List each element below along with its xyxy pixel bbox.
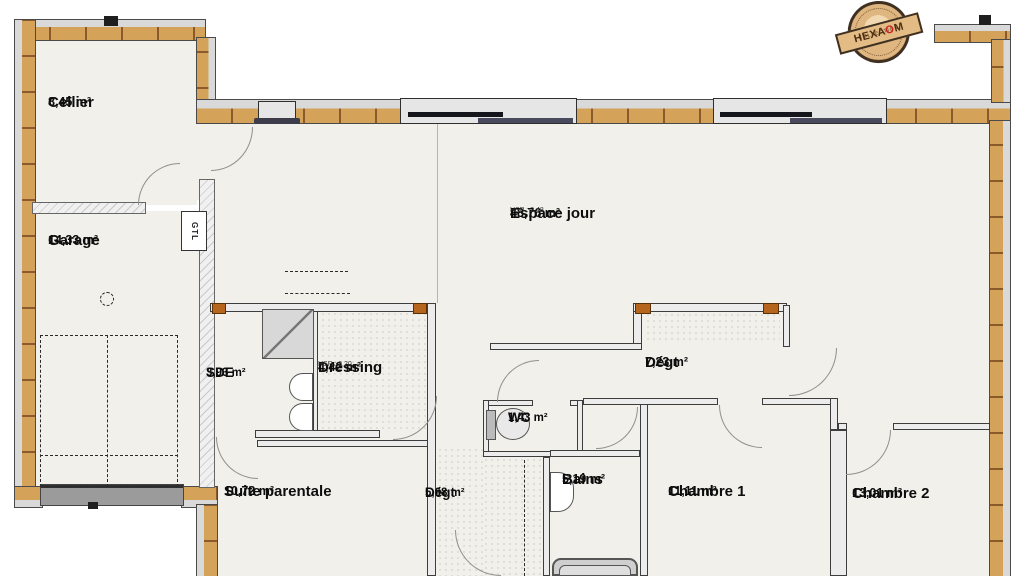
wall-chambre1-north-right xyxy=(762,398,838,405)
vent-mark-garage xyxy=(88,502,98,509)
lintel-degt-right xyxy=(763,303,779,314)
parking-space-crossline xyxy=(40,455,178,456)
wall-bains-chambre1 xyxy=(640,398,648,576)
shower xyxy=(262,309,314,359)
wall-sde-dressing-north xyxy=(210,303,435,312)
wall-wc-east xyxy=(577,400,583,457)
garage-wall-south-right xyxy=(182,487,217,507)
wall-kitchen-horizontal xyxy=(490,343,642,350)
bay-window-2-pane-dark xyxy=(720,112,812,117)
wall-chambre1-north-left xyxy=(583,398,718,405)
parking-space-centerline xyxy=(107,335,108,487)
gtl-box: GTL xyxy=(181,211,207,251)
wall-bains-west xyxy=(543,457,550,576)
wall-bains-north xyxy=(550,450,640,457)
closet-speckle-zone xyxy=(645,312,780,342)
vent-mark-left xyxy=(104,16,118,26)
wall-cellier-garage xyxy=(33,203,145,213)
window-front-small-sill xyxy=(254,118,300,124)
wall-degt-east xyxy=(783,305,790,347)
floor-plan: GTL Cellier 8,45 m² Garage 14,33 m² Espa… xyxy=(0,0,1024,576)
garage-drain-symbol xyxy=(100,292,114,306)
bay-window-1-pane-dark xyxy=(408,112,503,117)
wall-chambre1-chambre2 xyxy=(830,430,847,576)
wall-chambre2-west-stub xyxy=(830,398,838,430)
exterior-wall-east xyxy=(990,121,1010,576)
wall-chambre2-north-left xyxy=(838,423,847,430)
bay-window-1-pane-light xyxy=(478,118,573,123)
exterior-wall-front xyxy=(197,100,1010,123)
bathtub-inner xyxy=(559,565,631,576)
washbasin-sde-2 xyxy=(289,403,313,431)
partition-line-hall xyxy=(437,123,438,303)
toilet-tank xyxy=(486,410,496,440)
garage-wall-south-left xyxy=(15,487,42,507)
beam-line-bottom xyxy=(285,293,350,294)
parking-space-outline xyxy=(40,335,178,487)
wall-suite-north xyxy=(257,440,428,447)
garage-door xyxy=(41,485,183,505)
wall-sde-south xyxy=(255,430,380,438)
wall-dressing-east xyxy=(427,303,436,576)
lintel-sde-left xyxy=(212,303,226,314)
porch-wall-right xyxy=(992,40,1010,102)
beam-line-top xyxy=(285,271,348,272)
lintel-degt-left xyxy=(635,303,651,314)
lintel-sde-right xyxy=(413,303,427,314)
washbasin-sde-1 xyxy=(289,373,313,401)
attic-hatch-line xyxy=(524,460,525,576)
vent-mark-right xyxy=(979,15,991,25)
wall-chambre2-north-right xyxy=(893,423,990,430)
exterior-wall-west-south xyxy=(197,505,217,576)
hexaom-stamp-logo: collection HEXAOM xyxy=(830,0,927,73)
bay-window-2-pane-light xyxy=(790,118,882,123)
exterior-wall-west xyxy=(15,20,35,487)
